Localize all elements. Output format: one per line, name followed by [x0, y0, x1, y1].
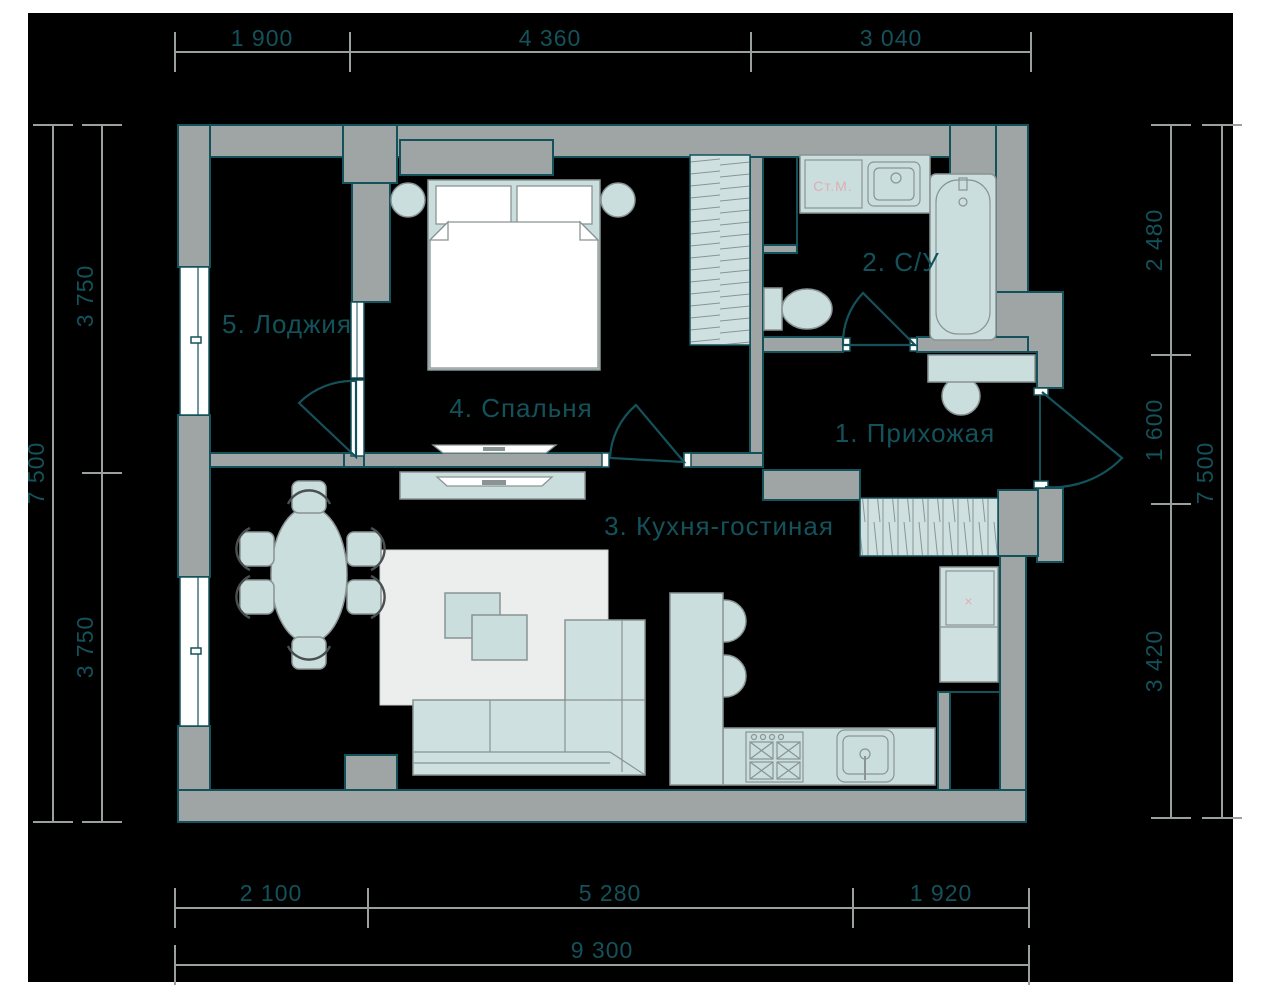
- dining-chair: [240, 580, 274, 614]
- pillow-right: [517, 186, 592, 224]
- loggia-door-leaf: [351, 380, 364, 456]
- bedroom-door-jamb-right: [684, 453, 691, 467]
- dim-value: 3 750: [72, 616, 98, 679]
- bathtub: [930, 174, 996, 340]
- wall-below-entry: [1037, 488, 1063, 562]
- label-hallway: 1. Прихожая: [835, 418, 995, 448]
- wall-bedroom-hall: [750, 157, 763, 467]
- washing-machine-label: Ст.М.: [813, 178, 852, 194]
- kitchen-counter: [723, 728, 935, 785]
- dim-value: 1 600: [1141, 399, 1167, 462]
- wall-bottom: [178, 790, 1026, 822]
- bedroom-door-jamb-left: [602, 453, 609, 467]
- dim-value: 2 480: [1141, 209, 1167, 272]
- wall-east-block: [998, 490, 1038, 556]
- dining-chair: [292, 481, 326, 513]
- coffee-table-2: [472, 615, 527, 660]
- bedroom-tv-stand: [483, 447, 505, 451]
- dim-value: 1 920: [910, 880, 973, 906]
- dining-chair: [240, 532, 274, 566]
- dining-chair: [292, 637, 326, 669]
- wall-bedroom-south-right: [684, 453, 763, 467]
- dim-value-total: 7 500: [1192, 442, 1218, 505]
- dim-value: 3 040: [860, 25, 923, 51]
- wall-shaft-cap: [763, 245, 797, 253]
- living-window-tick: [191, 648, 201, 654]
- dim-value: 3 750: [72, 265, 98, 328]
- label-bedroom: 4. Спальня: [449, 393, 592, 423]
- pillow-left: [436, 186, 511, 224]
- nightstand-left: [391, 183, 425, 217]
- bedroom-closet: [400, 140, 553, 175]
- wall-bath-south-left: [763, 337, 843, 352]
- kitchen-island: [670, 593, 723, 785]
- toilet-tank: [764, 288, 782, 330]
- wall-top: [178, 125, 950, 157]
- toilet-bowl: [782, 289, 832, 329]
- label-kitchen-living: 3. Кухня-гостиная: [604, 511, 834, 541]
- dim-value: 1 900: [231, 25, 294, 51]
- wall-loggia-top: [343, 125, 397, 183]
- wall-niche-void: [950, 692, 1000, 790]
- dim-value: 3 420: [1141, 630, 1167, 693]
- hall-console: [928, 355, 1035, 382]
- loggia-window-tick: [191, 337, 201, 343]
- wall-bedroom-south-left: [210, 453, 608, 467]
- ventilation-shaft: [763, 157, 797, 245]
- dim-value: 4 360: [519, 25, 582, 51]
- wall-east-column: [1000, 556, 1026, 790]
- nightstand-right: [601, 183, 635, 217]
- dining-table: [271, 507, 347, 643]
- wall-left-upper: [178, 125, 210, 267]
- label-loggia: 5. Лоджия: [222, 309, 352, 339]
- dim-value: 2 100: [240, 880, 303, 906]
- dim-value: 5 280: [579, 880, 642, 906]
- floor-plan-drawing: Ст.М. ×: [0, 0, 1261, 1000]
- dim-value-total: 9 300: [571, 937, 634, 963]
- living-tv-stand: [482, 480, 506, 485]
- floor-plan-page: Ст.М. ×: [0, 0, 1261, 1000]
- wall-loggia-pier: [352, 183, 390, 302]
- wall-right-upper: [996, 125, 1028, 292]
- dim-value-total: 7 500: [23, 442, 49, 505]
- wall-kitchen-stub: [938, 692, 950, 790]
- dining-chair: [347, 580, 381, 614]
- fridge-mark: ×: [964, 593, 973, 609]
- wall-hall-south: [763, 470, 860, 500]
- hall-closet-hatch: [861, 499, 997, 555]
- label-bathroom: 2. С/У: [862, 247, 939, 277]
- bed-duvet: [430, 222, 598, 368]
- dining-chair: [347, 532, 381, 566]
- wall-left-middle: [178, 415, 210, 577]
- wall-bottom-pier: [345, 755, 397, 790]
- bedroom-wardrobe-hatch: [691, 156, 749, 344]
